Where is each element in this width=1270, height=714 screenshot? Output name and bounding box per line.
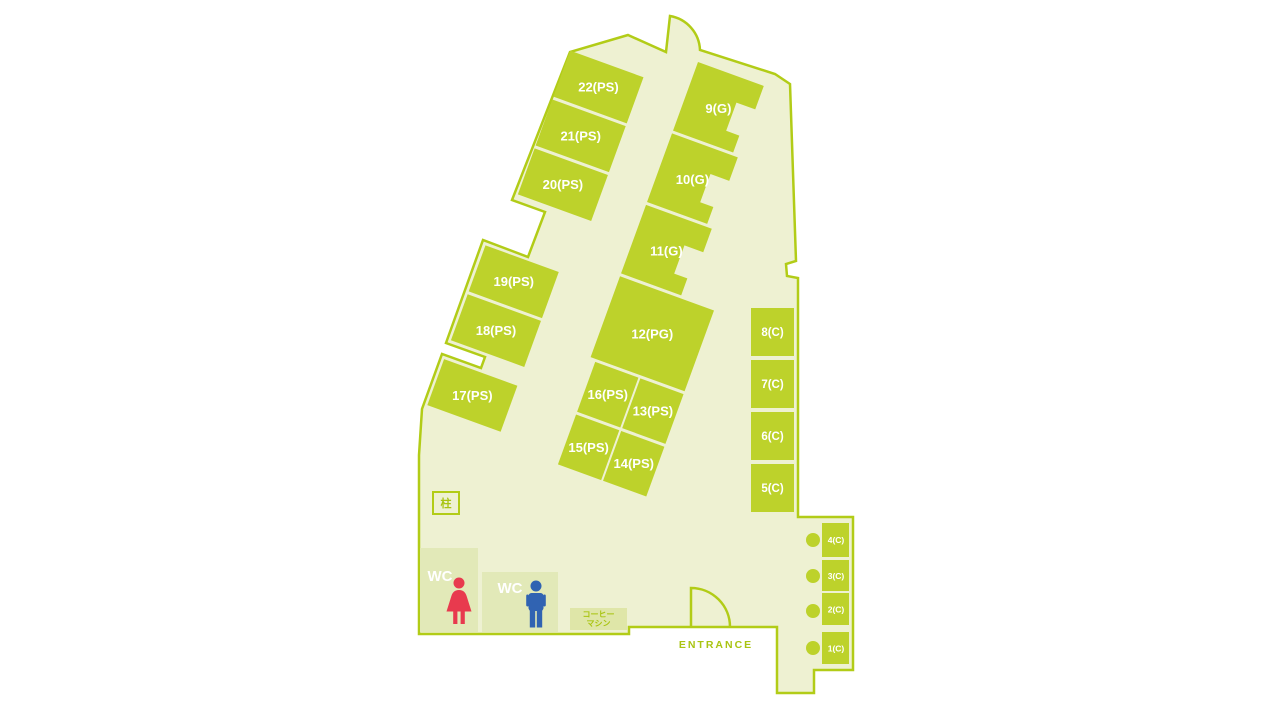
room-label: 19(PS) — [494, 274, 534, 289]
room-label: 10(G) — [676, 172, 709, 187]
room-label: 9(G) — [705, 101, 731, 116]
room-label: 15(PS) — [568, 440, 608, 455]
stool-dot — [806, 533, 820, 547]
room-label: 22(PS) — [578, 79, 618, 94]
wc-women-area — [420, 548, 478, 632]
room-label: 16(PS) — [588, 387, 628, 402]
coffee-machine-label: マシン — [587, 619, 611, 628]
floor-map: 22(PS) 21(PS) 20(PS) 19(PS) 18(PS) 17(PS… — [0, 0, 1270, 714]
room-label: 2(C) — [828, 605, 845, 615]
room-label: 4(C) — [828, 535, 845, 545]
stool-dot — [806, 604, 820, 618]
room-label: 7(C) — [761, 379, 784, 391]
entrance-label: ENTRANCE — [679, 639, 753, 651]
room-label: 13(PS) — [633, 404, 673, 419]
wc-women-label: WC — [428, 568, 453, 585]
room-label: 14(PS) — [613, 456, 653, 471]
wc-men-label: WC — [498, 580, 523, 597]
stool-dot — [806, 641, 820, 655]
coffee-machine-label: コーヒー — [583, 610, 615, 619]
room-label: 6(C) — [761, 431, 784, 443]
room-label: 17(PS) — [452, 388, 492, 403]
stool-dot — [806, 569, 820, 583]
floor-map-page: 22(PS) 21(PS) 20(PS) 19(PS) 18(PS) 17(PS… — [0, 0, 1270, 714]
room-label: 5(C) — [761, 483, 784, 495]
room-label: 8(C) — [761, 327, 784, 339]
room-label: 12(PG) — [631, 326, 673, 341]
room-label: 18(PS) — [476, 323, 516, 338]
room-label: 20(PS) — [543, 177, 583, 192]
room-label: 21(PS) — [560, 128, 600, 143]
room-label: 3(C) — [828, 571, 845, 581]
room-label: 1(C) — [828, 644, 845, 654]
room-label: 11(G) — [650, 244, 683, 259]
pillar-label: 柱 — [441, 496, 452, 510]
